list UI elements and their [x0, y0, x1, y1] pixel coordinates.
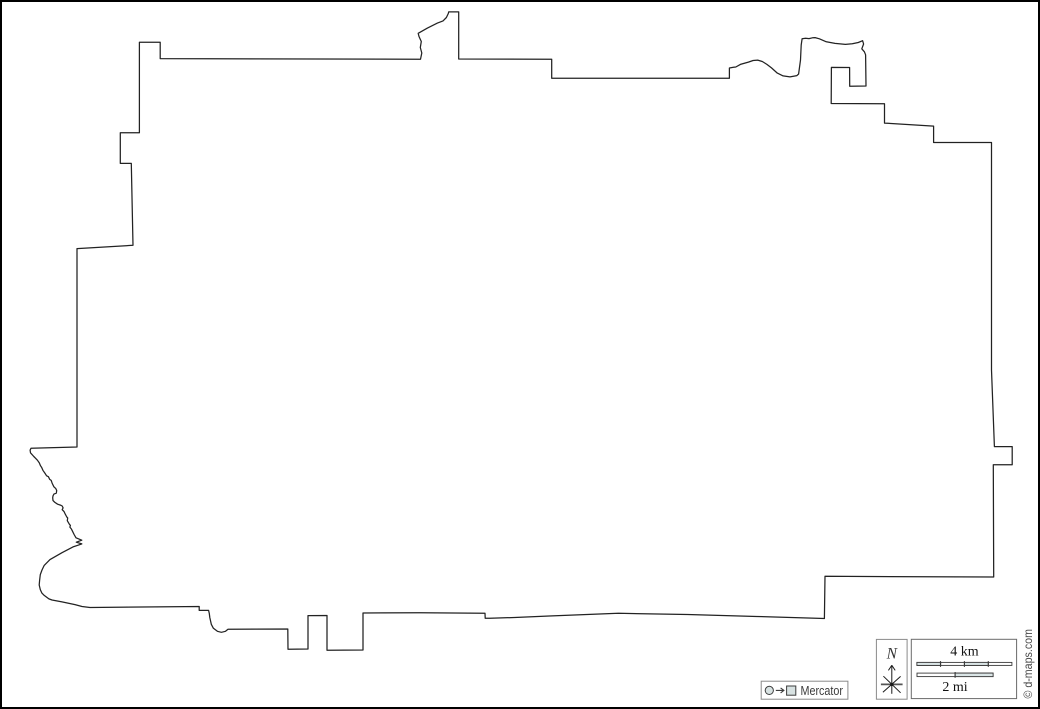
svg-text:N: N [886, 646, 899, 663]
svg-text:© d-maps.com: © d-maps.com [1022, 629, 1035, 699]
svg-text:4 km: 4 km [950, 644, 979, 659]
svg-text:Mercator: Mercator [801, 684, 844, 698]
svg-text:2 mi: 2 mi [942, 680, 967, 695]
